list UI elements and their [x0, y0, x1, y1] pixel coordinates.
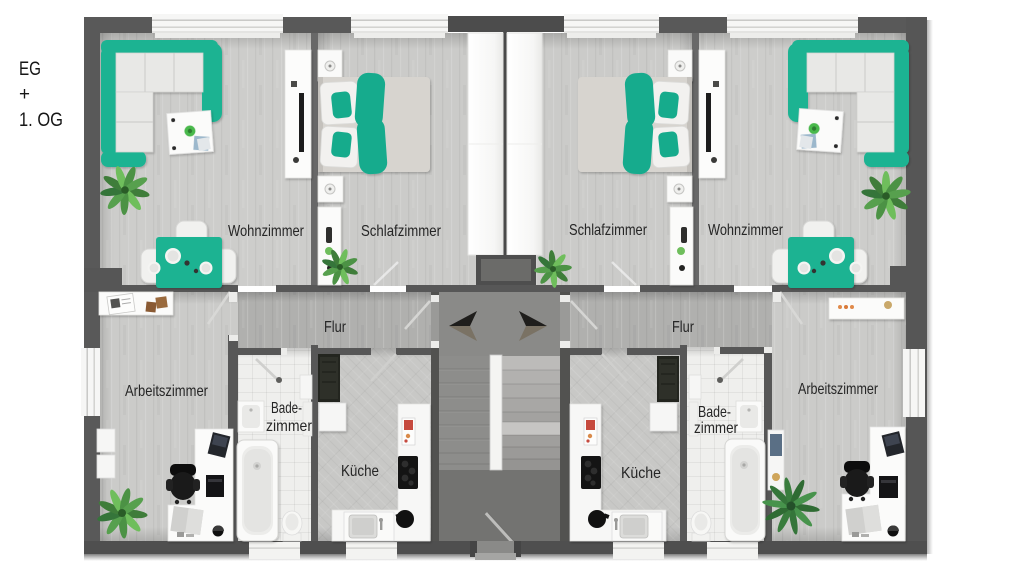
- svg-text:Schlafzimmer: Schlafzimmer: [569, 222, 648, 239]
- svg-text:Flur: Flur: [324, 319, 347, 336]
- svg-text:Flur: Flur: [672, 319, 695, 336]
- svg-text:Wohnzimmer: Wohnzimmer: [228, 223, 305, 240]
- svg-text:Arbeitszimmer: Arbeitszimmer: [125, 383, 209, 400]
- svg-text:Küche: Küche: [341, 463, 379, 480]
- svg-text:Bade-: Bade-: [271, 400, 302, 417]
- svg-text:zimmer: zimmer: [694, 420, 739, 437]
- svg-text:Schlafzimmer: Schlafzimmer: [361, 223, 442, 240]
- svg-text:1. OG: 1. OG: [19, 109, 63, 131]
- svg-text:zimmer: zimmer: [266, 418, 313, 435]
- svg-text:Bade-: Bade-: [698, 404, 731, 421]
- svg-text:Arbeitszimmer: Arbeitszimmer: [798, 381, 879, 398]
- svg-text:Küche: Küche: [621, 465, 661, 482]
- svg-text:Wohnzimmer: Wohnzimmer: [708, 222, 784, 239]
- svg-text:EG: EG: [19, 58, 41, 80]
- svg-text:+: +: [19, 83, 30, 105]
